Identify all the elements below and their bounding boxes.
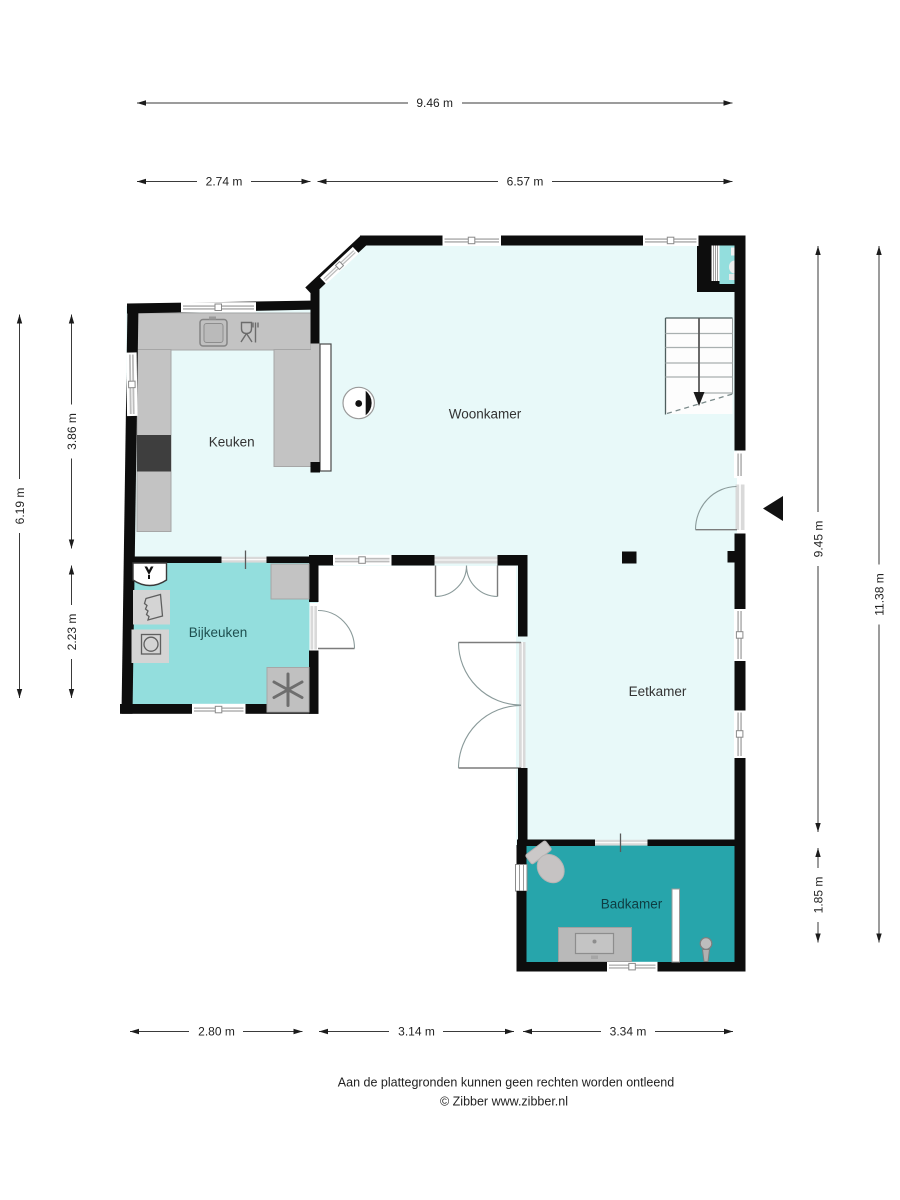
svg-text:11.38 m: 11.38 m bbox=[873, 573, 887, 615]
svg-text:1.85 m: 1.85 m bbox=[812, 877, 826, 914]
svg-text:2.74 m: 2.74 m bbox=[206, 175, 243, 189]
svg-text:3.34 m: 3.34 m bbox=[610, 1025, 647, 1039]
svg-text:Aan de plattegronden kunnen ge: Aan de plattegronden kunnen geen rechten… bbox=[338, 1076, 674, 1090]
svg-text:Badkamer: Badkamer bbox=[601, 897, 663, 912]
svg-text:6.57 m: 6.57 m bbox=[507, 175, 544, 189]
svg-text:6.19 m: 6.19 m bbox=[13, 488, 27, 525]
svg-text:Woonkamer: Woonkamer bbox=[449, 407, 522, 422]
svg-text:© Zibber www.zibber.nl: © Zibber www.zibber.nl bbox=[440, 1095, 568, 1109]
svg-text:Eetkamer: Eetkamer bbox=[629, 684, 687, 699]
svg-text:9.46 m: 9.46 m bbox=[416, 96, 453, 110]
svg-text:2.23 m: 2.23 m bbox=[65, 614, 79, 651]
svg-text:Bijkeuken: Bijkeuken bbox=[189, 625, 248, 640]
svg-text:9.45 m: 9.45 m bbox=[812, 521, 826, 558]
svg-text:2.80 m: 2.80 m bbox=[198, 1025, 235, 1039]
svg-text:Keuken: Keuken bbox=[209, 435, 255, 450]
svg-text:3.14 m: 3.14 m bbox=[398, 1025, 435, 1039]
svg-text:3.86 m: 3.86 m bbox=[65, 413, 79, 450]
